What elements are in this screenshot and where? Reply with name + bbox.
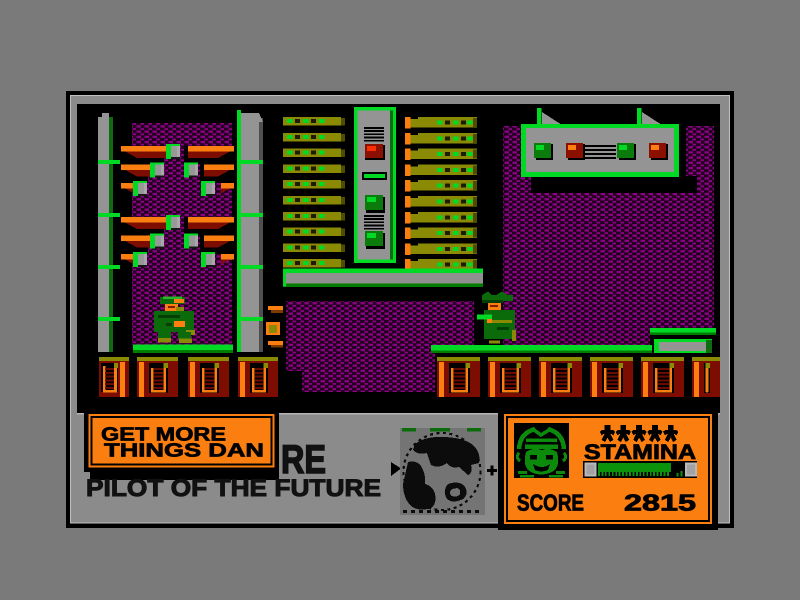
svg-text:THINGS DAN: THINGS DAN [104,441,264,462]
svg-text:PILOT OF THE FUTURE: PILOT OF THE FUTURE [86,475,381,502]
svg-text:SCORE: SCORE [517,490,584,516]
svg-text:STAMINA: STAMINA [584,441,696,464]
svg-text:2815: 2815 [624,490,696,516]
